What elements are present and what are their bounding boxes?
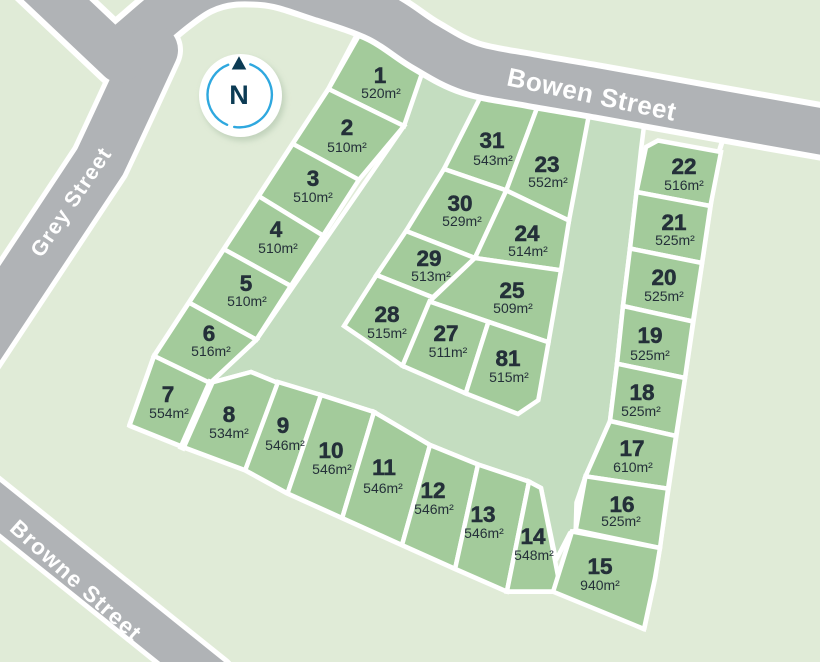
svg-text:525m²: 525m²: [630, 347, 670, 363]
svg-text:610m²: 610m²: [613, 459, 653, 475]
svg-text:509m²: 509m²: [493, 300, 533, 316]
svg-text:81: 81: [495, 346, 520, 371]
svg-text:552m²: 552m²: [528, 174, 568, 190]
svg-text:14: 14: [520, 524, 546, 549]
svg-text:510m²: 510m²: [227, 293, 267, 309]
svg-text:940m²: 940m²: [580, 577, 620, 593]
svg-text:12: 12: [420, 478, 445, 503]
svg-text:22: 22: [671, 154, 696, 179]
svg-text:514m²: 514m²: [508, 243, 548, 259]
svg-text:13: 13: [470, 502, 495, 527]
svg-text:546m²: 546m²: [464, 525, 504, 541]
svg-text:19: 19: [637, 323, 662, 348]
svg-text:10: 10: [318, 438, 343, 463]
svg-text:516m²: 516m²: [664, 177, 704, 193]
svg-text:515m²: 515m²: [489, 369, 529, 385]
svg-text:554m²: 554m²: [149, 405, 189, 421]
svg-text:7: 7: [162, 382, 175, 407]
svg-text:11: 11: [372, 455, 396, 480]
svg-text:515m²: 515m²: [367, 325, 407, 341]
svg-text:548m²: 548m²: [514, 547, 554, 563]
svg-text:529m²: 529m²: [442, 213, 482, 229]
svg-text:546m²: 546m²: [414, 501, 454, 517]
svg-text:520m²: 520m²: [361, 85, 401, 101]
svg-text:2: 2: [341, 115, 354, 140]
svg-text:546m²: 546m²: [265, 437, 305, 453]
svg-text:28: 28: [374, 302, 399, 327]
svg-text:4: 4: [270, 217, 283, 242]
svg-text:20: 20: [651, 265, 676, 290]
svg-text:N: N: [229, 80, 249, 110]
svg-text:525m²: 525m²: [601, 513, 641, 529]
svg-text:9: 9: [277, 413, 290, 438]
svg-text:525m²: 525m²: [621, 403, 661, 419]
svg-text:511m²: 511m²: [429, 344, 468, 360]
svg-text:31: 31: [479, 128, 504, 153]
svg-text:534m²: 534m²: [209, 425, 249, 441]
svg-text:546m²: 546m²: [363, 480, 403, 496]
svg-text:525m²: 525m²: [655, 232, 695, 248]
svg-text:17: 17: [619, 436, 644, 461]
svg-text:543m²: 543m²: [473, 152, 513, 168]
svg-text:510m²: 510m²: [258, 240, 298, 256]
svg-text:516m²: 516m²: [191, 343, 231, 359]
svg-text:8: 8: [223, 402, 236, 427]
svg-text:525m²: 525m²: [644, 288, 684, 304]
svg-text:18: 18: [629, 380, 654, 405]
svg-text:510m²: 510m²: [293, 189, 333, 205]
svg-text:3: 3: [307, 166, 320, 191]
svg-text:546m²: 546m²: [312, 461, 352, 477]
svg-text:513m²: 513m²: [411, 268, 451, 284]
svg-text:27: 27: [433, 321, 458, 346]
svg-text:510m²: 510m²: [327, 139, 367, 155]
svg-text:15: 15: [587, 554, 612, 579]
